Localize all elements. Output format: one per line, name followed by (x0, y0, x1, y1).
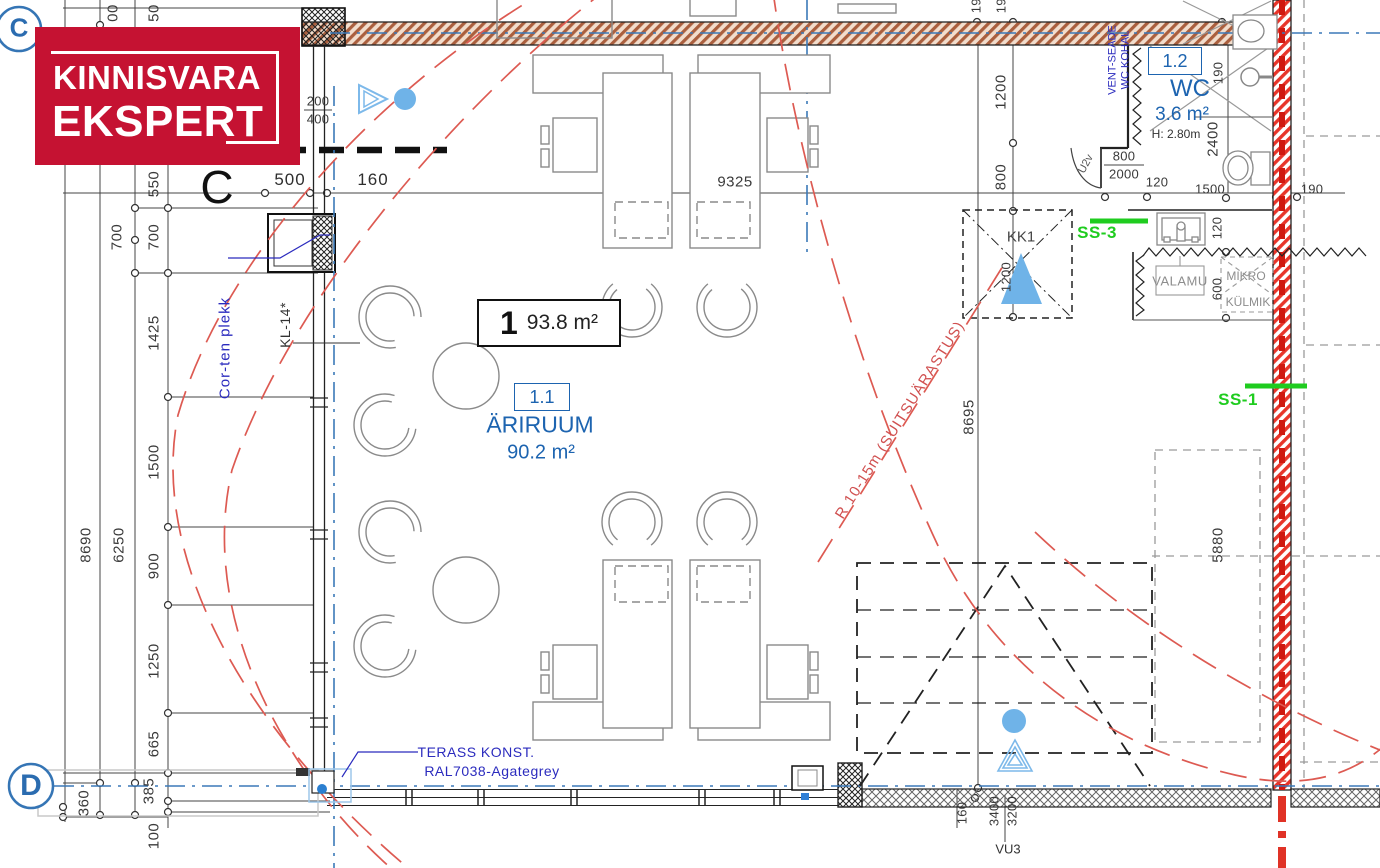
grid-bubble-d: D (20, 769, 42, 803)
dim-label: 900 (146, 553, 163, 580)
dim-label: 00 (105, 4, 122, 22)
round-table (433, 557, 499, 623)
dim-label: 700 (146, 224, 163, 251)
vent-note-line1: VENT-SEADE (1106, 25, 1119, 95)
left-window-wall (310, 46, 328, 788)
unit-label-box: 1 93.8 m² (477, 299, 621, 347)
terass-note-line2: RAL7038-Agategrey (424, 763, 559, 779)
sink-counter (1157, 213, 1205, 245)
dim-label: 1200 (993, 74, 1010, 109)
vent-note-line2: WC KOHAL (1119, 25, 1132, 95)
grid-bubble-c: C (10, 13, 29, 44)
triangle-right-icon (359, 85, 387, 113)
kk1-smoke-hatch (963, 210, 1072, 318)
dim-label: 190 (1211, 62, 1226, 85)
dim-label: 120 (1146, 175, 1169, 190)
dim-label: 100 (146, 823, 163, 850)
kinnisvara-ekspert-logo: KINNISVARA EKSPERT (35, 27, 300, 165)
dim-label: 500 (274, 170, 305, 190)
dim-label: 8695 (961, 399, 978, 434)
dim-label: 385 (141, 778, 158, 805)
logo-frame-right (276, 51, 279, 144)
dim-label: 190 (1301, 182, 1324, 197)
dim-label: 160 (357, 170, 388, 190)
dim-label: 1500 (1195, 182, 1225, 197)
valamu-label: VALAMU (1152, 274, 1208, 289)
dim-label: 2400 (1205, 121, 1222, 156)
wc-area: 3.6 m² (1155, 104, 1209, 126)
wc-name: WC (1170, 75, 1210, 103)
dim-label: 2000 (1109, 167, 1139, 182)
room-code: 1.1 (529, 387, 554, 408)
washbasin (1233, 15, 1277, 49)
dim-label: 1425 (146, 315, 163, 350)
gate-dashed-assembly (857, 563, 1152, 786)
round-table (433, 343, 499, 409)
bottom-window-wall (327, 789, 838, 806)
corten-label: Cor-ten plekk (217, 297, 234, 399)
floor-plan: 00 50 700 550 700 1425 1500 900 1250 665… (0, 0, 1380, 868)
unit-area: 93.8 m² (527, 311, 598, 335)
dim-label: 3200 (1005, 796, 1020, 826)
wc-height: H: 2.80m (1152, 127, 1201, 141)
dim-label: 550 (146, 171, 163, 198)
room-area: 90.2 m² (507, 442, 575, 465)
dim-label: 190 (994, 0, 1009, 13)
triangle-up-icon (998, 740, 1032, 771)
dim-label: 8690 (78, 527, 95, 562)
dim-label: 360 (76, 790, 93, 817)
logo-text-line2: EKSPERT (52, 97, 263, 147)
furniture (354, 0, 896, 740)
dim-label: 160 (955, 802, 970, 825)
wc-code-box: 1.2 (1148, 47, 1202, 75)
corner-dot-icon (317, 784, 327, 794)
vent-note: VENT-SEADE WC KOHAL (1106, 25, 1131, 95)
room-code-box: 1.1 (514, 383, 570, 411)
ss3-label: SS-3 (1077, 223, 1117, 243)
toilet (1223, 151, 1270, 185)
dim-label: 1250 (146, 643, 163, 678)
kl14-label: KL-14* (277, 302, 293, 348)
dim-label: 665 (146, 731, 163, 758)
mikro-label: MIKRO (1226, 269, 1265, 283)
dim-label: 1200 (999, 262, 1014, 292)
dim-label: 50 (146, 4, 163, 22)
kylmik-label: KÜLMIK (1226, 295, 1271, 309)
dim-label: 9325 (717, 174, 752, 191)
logo-frame-top (51, 51, 279, 54)
dim-label: 3400 (987, 796, 1002, 826)
dim-label: 700 (109, 224, 126, 251)
logo-text-line1: KINNISVARA (53, 59, 261, 97)
dim-label: 200 (307, 94, 330, 109)
kk1-label: KK1 (1007, 229, 1035, 246)
unit-number: 1 (500, 305, 518, 342)
ss1-label: SS-1 (1218, 390, 1258, 410)
terass-note-line1: TERASS KONST. (418, 744, 535, 760)
bottom-column (838, 763, 862, 807)
dim-label: 120 (1210, 217, 1225, 240)
door-handle (1241, 68, 1273, 86)
sprinkler-dot-icon (1002, 709, 1026, 733)
dim-label: 6250 (111, 527, 128, 562)
grid-letter-c: C (200, 160, 233, 214)
dim-label: 800 (1113, 149, 1136, 164)
sprinkler-dot-icon (394, 88, 416, 110)
dim-label: 190 (969, 0, 984, 13)
dim-label: 1500 (146, 444, 163, 479)
dim-label: 600 (1210, 278, 1225, 301)
top-corner-column (302, 8, 345, 46)
dim-label: 5880 (1210, 527, 1227, 562)
room-name: ÄRIRUUM (486, 412, 593, 439)
dim-label: 400 (307, 112, 330, 127)
vu3-label: VU3 (995, 842, 1020, 857)
dim-label: 800 (993, 164, 1010, 191)
wc-code: 1.2 (1162, 51, 1187, 72)
terass-leader-line (342, 752, 418, 777)
bottom-wall-hatched (862, 789, 1271, 807)
